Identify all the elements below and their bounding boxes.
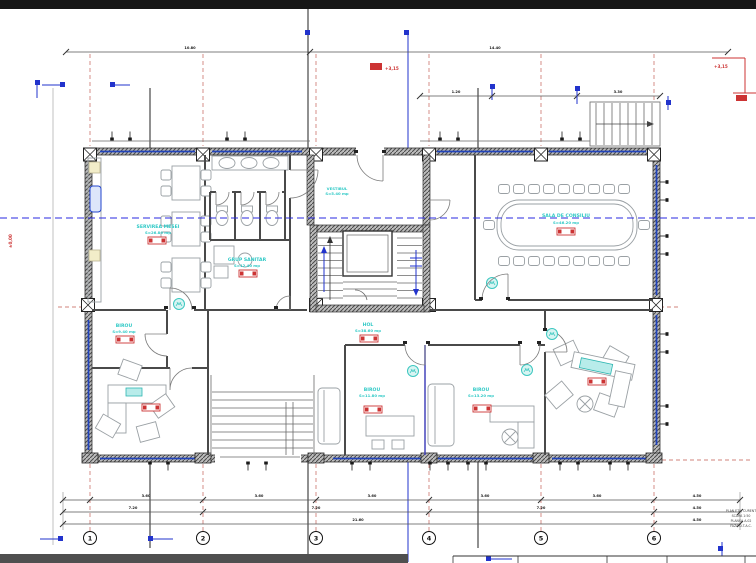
desk [366, 416, 414, 436]
toilet [266, 206, 278, 226]
svg-text:7.20: 7.20 [537, 506, 546, 510]
svg-text:3.60: 3.60 [368, 494, 377, 498]
grid-bubble-4: 4 [427, 535, 432, 543]
svg-text:S=46.20 mp: S=46.20 mp [553, 220, 579, 225]
svg-text:S=13.20 mp: S=13.20 mp [468, 393, 494, 398]
titleblock-line-2: SCARA 1:50 [732, 514, 751, 518]
svg-text:S=9.40 mp: S=9.40 mp [112, 329, 136, 334]
bench [318, 388, 340, 444]
grid-bubble-6: 6 [652, 535, 657, 543]
titleblock-line-4: FAZA D.T.A.C. [730, 524, 752, 528]
desk [490, 406, 534, 422]
svg-text:3.60: 3.60 [593, 494, 602, 498]
sink [263, 158, 279, 169]
floor-plan-viewer: SERVIREA MESEI S=26.80 mp GRUP SANITAR S… [0, 0, 756, 563]
sofa [428, 384, 454, 446]
grid-bubble-2: 2 [201, 535, 206, 543]
grid-bubbles: 1 2 3 4 5 6 [84, 532, 661, 545]
plant [547, 329, 558, 340]
dimension-chains-bottom: 3.60 3.60 3.60 3.60 3.60 4.50 7.20 7.20 … [60, 492, 743, 530]
toilet [241, 206, 253, 226]
svg-text:1.20: 1.20 [452, 90, 461, 94]
svg-text:S=11.80 mp: S=11.80 mp [359, 393, 385, 398]
svg-text:S=12.40 mp: S=12.40 mp [234, 263, 260, 268]
toilet [216, 206, 228, 226]
plant [522, 365, 533, 376]
svg-text:4.50: 4.50 [693, 506, 702, 510]
svg-text:3.60: 3.60 [481, 494, 490, 498]
svg-text:21.60: 21.60 [352, 518, 364, 522]
top-bar [0, 0, 756, 9]
svg-text:3.30: 3.30 [614, 90, 623, 94]
svg-text:7.20: 7.20 [312, 506, 321, 510]
dimension-chain-top: 10.80 14.40 1.20 3.30 [63, 46, 731, 110]
external-stair [590, 102, 660, 146]
svg-text:S=26.80 mp: S=26.80 mp [145, 230, 171, 235]
plant [408, 366, 419, 377]
level-top-right: +3,15 [714, 64, 728, 69]
svg-text:S=5.40 mp: S=5.40 mp [325, 191, 349, 196]
conference-table [497, 200, 637, 250]
floor-plan-canvas: SERVIREA MESEI S=26.80 mp GRUP SANITAR S… [0, 0, 756, 563]
sink [241, 158, 257, 169]
svg-text:4.50: 4.50 [693, 518, 702, 522]
svg-text:S=38.60 mp: S=38.60 mp [355, 328, 381, 333]
svg-text:7.20: 7.20 [129, 506, 138, 510]
bottom-band: PLAN ETAJ CURENT SCARA 1:50 PLANSA A.02 … [0, 509, 756, 563]
grid-bubble-1: 1 [88, 535, 93, 543]
sink [219, 158, 235, 169]
elevator [343, 231, 392, 276]
svg-text:10.80: 10.80 [184, 46, 196, 50]
monitor [126, 388, 142, 396]
svg-text:3.60: 3.60 [142, 494, 151, 498]
titleblock-line-1: PLAN ETAJ CURENT [726, 509, 756, 513]
grid-bubble-3: 3 [314, 535, 319, 543]
kitchen-sink [90, 186, 101, 212]
svg-text:14.40: 14.40 [489, 46, 501, 50]
level-top: +3,15 [385, 66, 399, 71]
plant [174, 299, 185, 310]
titleblock-line-3: PLANSA A.02 [731, 519, 752, 523]
svg-text:3.60: 3.60 [255, 494, 264, 498]
svg-text:4.50: 4.50 [693, 494, 702, 498]
level-left: ±0,00 [8, 234, 13, 248]
grid-bubble-5: 5 [539, 535, 544, 543]
